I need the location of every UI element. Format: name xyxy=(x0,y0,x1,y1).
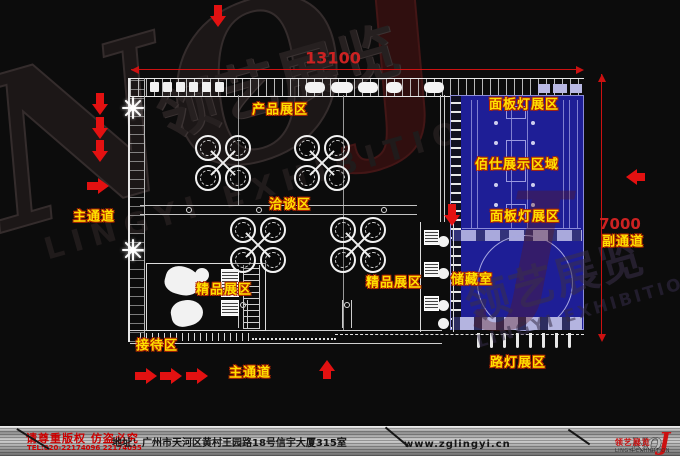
red-arrow-down-icon xyxy=(92,93,108,115)
red-arrow-right-icon xyxy=(186,368,208,384)
storage-wall xyxy=(440,95,441,222)
footer-logo-text: 领艺展览 LINGYI EXHIBITION xyxy=(615,437,670,454)
red-arrow-down-icon xyxy=(92,140,108,162)
area-label-street-lamp: 路灯展区 xyxy=(490,352,546,371)
red-arrow-right-icon xyxy=(87,178,109,194)
red-arrow-up-icon xyxy=(319,357,335,379)
area-label-negotiation: 洽谈区 xyxy=(269,194,311,213)
footer-logo-en: LINGYI EXHIBITION xyxy=(615,448,670,454)
table-cluster xyxy=(230,217,286,273)
area-label-storage: 储藏室 xyxy=(451,269,493,288)
storage-wall xyxy=(444,95,445,222)
area-label-boutique-left: 精品展区 xyxy=(196,279,252,298)
footer-logo-cn: 领艺展览 xyxy=(615,437,670,448)
table-cluster xyxy=(195,135,251,191)
area-label-main-aisle-bottom: 主通道 xyxy=(229,362,271,381)
area-label-boutique-right: 精品展区 xyxy=(366,272,422,291)
red-arrow-down-icon xyxy=(92,117,108,139)
table-cluster xyxy=(294,135,350,191)
footer-website[interactable]: www.zglingyi.cn xyxy=(404,439,511,450)
red-arrow-down-icon xyxy=(444,204,460,226)
area-label-baishi-display: 佰仕展示区域 xyxy=(475,154,559,173)
area-label-side-aisle: 副通道 xyxy=(602,231,644,250)
street-lamp xyxy=(568,333,571,348)
table-cluster xyxy=(330,217,386,273)
area-label-panel-light-top: 面板灯展区 xyxy=(489,94,559,113)
footer-address: 地址：广州市天河区黄村王园路18号信宇大厦315室 xyxy=(112,434,347,449)
red-arrow-right-icon xyxy=(135,368,157,384)
floorplan-poster: NOJ 领艺展览 LINGYI EXHIBITION xyxy=(0,0,680,456)
red-arrow-down-icon xyxy=(210,5,226,27)
red-arrow-left-icon xyxy=(623,169,645,185)
area-label-panel-light-bottom: 面板灯展区 xyxy=(490,206,560,225)
area-label-main-aisle-left: 主通道 xyxy=(73,206,115,225)
display-cabinet-column xyxy=(420,222,454,332)
area-label-product: 产品展区 xyxy=(252,99,308,118)
area-label-reception: 接待区 xyxy=(136,335,178,354)
dimension-top-value: 13100 xyxy=(305,49,361,68)
red-arrow-right-icon xyxy=(160,368,182,384)
footer-content: 请尊重版权 仿盗必究 TEL:020-22174096 22174095 地址：… xyxy=(0,426,680,456)
column xyxy=(342,300,352,328)
